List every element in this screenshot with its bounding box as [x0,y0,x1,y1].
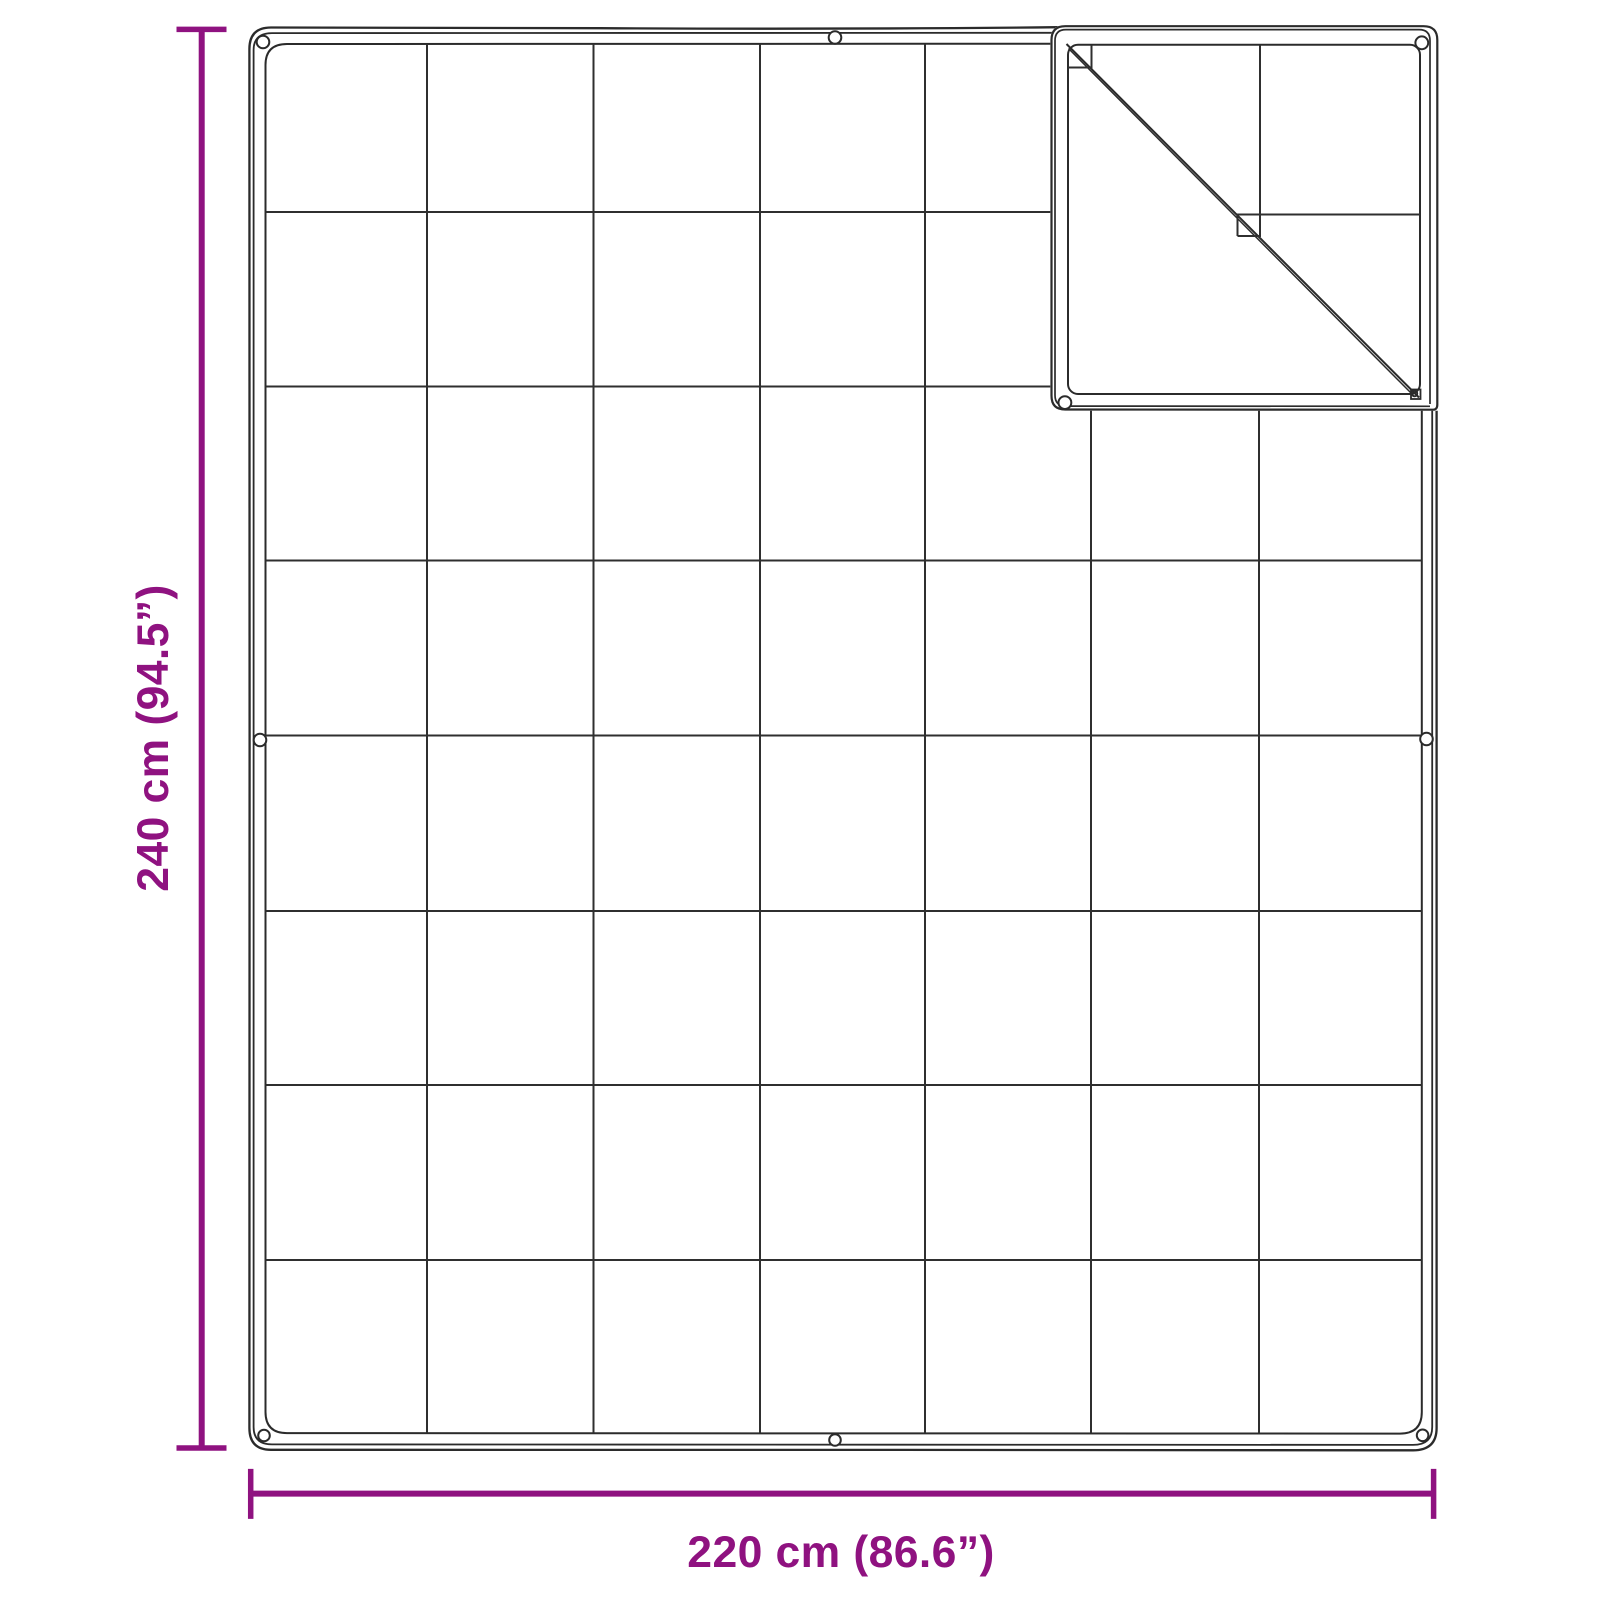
svg-text:240 cm (94.5”): 240 cm (94.5”) [129,584,178,891]
svg-text:220 cm (86.6”): 220 cm (86.6”) [687,1528,994,1577]
